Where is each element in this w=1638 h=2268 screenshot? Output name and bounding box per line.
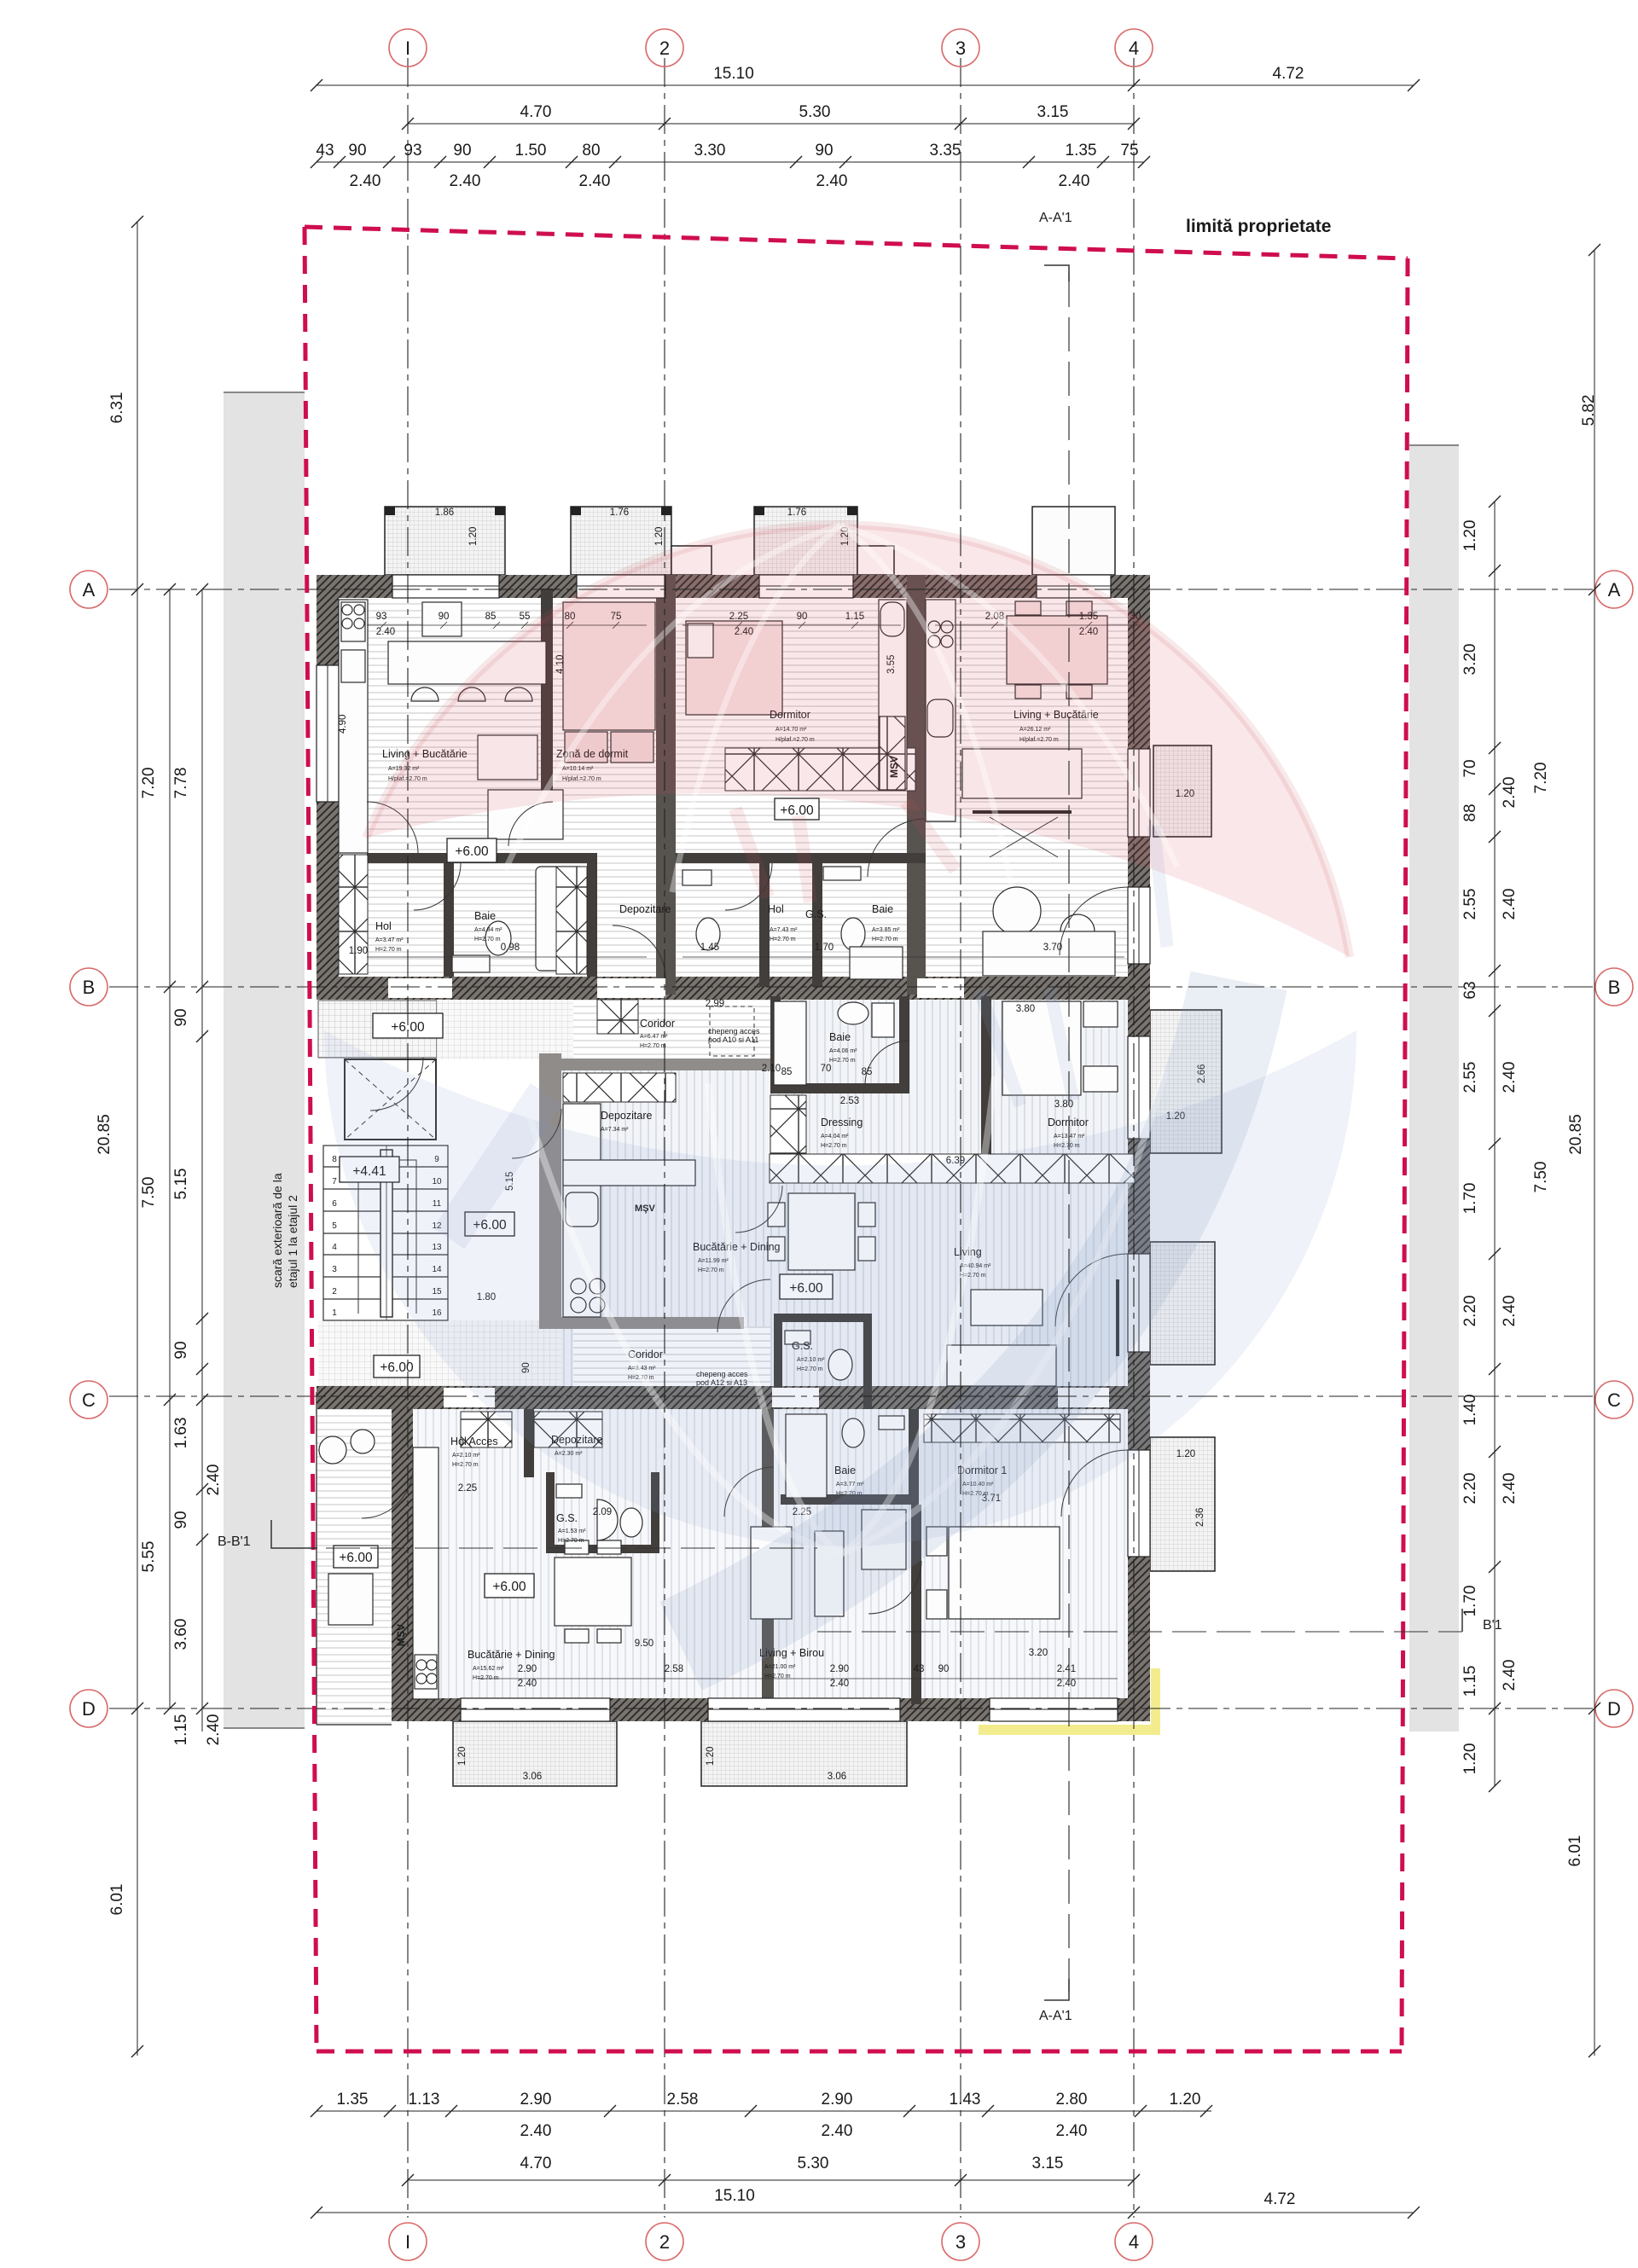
svg-text:B: B [1608,977,1621,998]
svg-text:A=21.00 m²: A=21.00 m² [764,1664,796,1670]
svg-text:2.20: 2.20 [1461,1473,1479,1505]
svg-text:93: 93 [404,142,421,160]
svg-text:2.40: 2.40 [450,172,481,190]
svg-text:3.60: 3.60 [172,1619,190,1650]
svg-text:2.90: 2.90 [518,1664,537,1674]
svg-text:85: 85 [781,1067,793,1077]
svg-text:2.40: 2.40 [205,1714,223,1746]
svg-text:MŞV: MŞV [395,1624,407,1646]
svg-text:2.80: 2.80 [1056,2091,1088,2108]
svg-text:93: 93 [376,612,387,622]
svg-text:B: B [83,977,96,998]
svg-text:80: 80 [582,142,600,160]
svg-text:3: 3 [955,2231,966,2253]
svg-text:1.20: 1.20 [1461,520,1479,552]
svg-text:A=1.53 m²: A=1.53 m² [558,1528,586,1534]
svg-text:A=4.06 m²: A=4.06 m² [829,1048,857,1054]
svg-text:6: 6 [332,1199,337,1209]
svg-text:2.10: 2.10 [762,1064,781,1074]
svg-text:6.01: 6.01 [1566,1836,1584,1867]
svg-text:55: 55 [520,612,531,622]
svg-text:2.40: 2.40 [1501,1296,1519,1327]
svg-text:20.85: 20.85 [96,1114,113,1155]
svg-text:5: 5 [332,1221,337,1231]
svg-text:pod A10 si A11: pod A10 si A11 [708,1035,758,1044]
svg-text:5.30: 5.30 [798,2155,829,2172]
svg-text:2.90: 2.90 [822,2091,853,2108]
svg-text:A-A'1: A-A'1 [1039,211,1072,225]
svg-text:A=3.47 m²: A=3.47 m² [375,937,404,943]
svg-text:1.35: 1.35 [337,2091,369,2108]
svg-text:A=7.34 m²: A=7.34 m² [601,1127,629,1133]
svg-text:limită proprietate: limită proprietate [1186,217,1331,236]
svg-text:90: 90 [815,142,833,160]
svg-text:I: I [405,2231,410,2253]
svg-text:3.15: 3.15 [1037,103,1069,121]
svg-text:15.10: 15.10 [714,2187,755,2205]
svg-text:+6.00: +6.00 [380,1360,414,1375]
svg-text:A=4.04 m²: A=4.04 m² [821,1134,849,1140]
svg-text:H=2.70 m: H=2.70 m [829,1058,856,1064]
svg-text:1.86: 1.86 [435,508,454,518]
svg-text:5.30: 5.30 [799,103,831,121]
svg-text:1.15: 1.15 [1461,1666,1479,1697]
svg-text:90: 90 [453,142,471,160]
svg-text:Hol: Hol [375,920,392,932]
svg-text:5.82: 5.82 [1580,395,1598,426]
svg-text:H=2.70 m: H=2.70 m [770,937,796,943]
svg-text:1.90: 1.90 [349,946,368,956]
svg-text:2.58: 2.58 [665,1664,683,1674]
svg-text:H=2.70 m: H=2.70 m [473,1675,499,1681]
svg-text:88: 88 [1461,803,1479,821]
svg-text:3.15: 3.15 [1032,2155,1064,2172]
svg-text:A: A [83,579,96,600]
svg-text:H=2.70 m: H=2.70 m [375,947,402,953]
svg-text:1: 1 [332,1308,337,1318]
svg-text:A=7.43 m²: A=7.43 m² [770,927,798,933]
svg-text:2.40: 2.40 [1501,1062,1519,1093]
svg-text:chepeng acces: chepeng acces [708,1027,760,1035]
svg-text:Hol Acces: Hol Acces [450,1436,498,1447]
svg-text:Coridor: Coridor [640,1018,675,1030]
svg-text:90: 90 [172,1008,190,1026]
svg-text:7: 7 [332,1177,337,1186]
svg-text:C: C [1607,1389,1621,1411]
svg-text:4.90: 4.90 [338,715,348,734]
svg-text:2.40: 2.40 [1501,777,1519,809]
svg-text:0.98: 0.98 [501,943,520,953]
svg-text:2.55: 2.55 [1461,889,1479,920]
svg-text:Dormitor: Dormitor [1048,1117,1089,1128]
svg-text:2.40: 2.40 [1501,1660,1519,1691]
svg-text:H=2.70 m: H=2.70 m [558,1538,584,1544]
svg-text:85: 85 [485,612,497,622]
svg-text:1.45: 1.45 [700,943,719,953]
svg-text:70: 70 [821,1064,832,1074]
svg-text:H=2.70 m: H=2.70 m [452,1462,479,1468]
svg-text:9.50: 9.50 [635,1639,653,1649]
svg-text:3.20: 3.20 [1029,1648,1048,1658]
svg-text:2.55: 2.55 [1461,1062,1479,1093]
svg-text:4: 4 [1129,2231,1139,2253]
svg-text:Depozitare: Depozitare [601,1110,652,1122]
svg-text:2: 2 [332,1287,337,1296]
svg-text:A-A'1: A-A'1 [1039,2009,1072,2023]
svg-text:+6.00: +6.00 [455,844,489,859]
svg-text:1.15: 1.15 [172,1714,190,1746]
svg-text:70: 70 [1461,759,1479,777]
svg-text:2: 2 [659,2231,670,2253]
svg-text:2.40: 2.40 [822,2122,853,2140]
svg-text:7.50: 7.50 [1532,1162,1550,1193]
svg-text:2.41: 2.41 [1057,1664,1076,1674]
svg-text:Baie: Baie [872,903,893,915]
svg-text:6.31: 6.31 [108,392,126,424]
svg-text:5.15: 5.15 [172,1169,190,1200]
svg-text:C: C [82,1389,96,1411]
svg-text:H=2.70 m: H=2.70 m [872,937,898,943]
svg-text:scară exterioară de la: scară exterioară de la [270,1173,284,1288]
svg-text:H=2.70 m: H=2.70 m [474,937,501,943]
svg-text:2.20: 2.20 [1461,1296,1479,1327]
svg-text:+6.00: +6.00 [492,1580,526,1594]
svg-text:1.43: 1.43 [950,2091,981,2108]
svg-text:2.40: 2.40 [205,1465,223,1496]
svg-text:3.06: 3.06 [828,1772,846,1782]
svg-text:1.70: 1.70 [1461,1586,1479,1617]
svg-text:I: I [405,38,410,59]
svg-text:2.90: 2.90 [830,1664,849,1674]
svg-text:2.58: 2.58 [667,2091,699,2108]
svg-text:+6.00: +6.00 [339,1551,373,1565]
svg-text:1.70: 1.70 [1461,1183,1479,1215]
svg-text:2.40: 2.40 [520,2122,552,2140]
svg-text:43: 43 [316,142,334,160]
svg-text:2.40: 2.40 [816,172,848,190]
svg-text:G.S.: G.S. [805,908,827,920]
svg-text:2.40: 2.40 [579,172,611,190]
svg-text:Baie: Baie [829,1031,851,1043]
svg-text:43: 43 [914,1664,925,1674]
svg-text:90: 90 [938,1664,950,1674]
svg-text:Bucătărie + Dining: Bucătărie + Dining [468,1649,555,1661]
svg-text:1.63: 1.63 [172,1418,190,1449]
svg-text:H=2.70 m: H=2.70 m [640,1043,666,1049]
svg-text:3.30: 3.30 [694,142,726,160]
svg-text:3: 3 [955,38,966,59]
svg-text:1.20: 1.20 [1170,2091,1201,2108]
svg-text:15.10: 15.10 [713,65,754,83]
svg-text:A=6.47 m²: A=6.47 m² [640,1034,668,1040]
svg-text:G.S.: G.S. [556,1512,578,1524]
svg-text:2.40: 2.40 [1059,172,1090,190]
svg-text:2.90: 2.90 [520,2091,552,2108]
svg-text:90: 90 [172,1511,190,1528]
svg-text:2.40: 2.40 [1501,1473,1519,1505]
svg-text:etajul 1 la etajul 2: etajul 1 la etajul 2 [286,1195,299,1288]
svg-text:3.70: 3.70 [1043,943,1062,953]
svg-text:2.53: 2.53 [840,1096,859,1106]
svg-text:A=15.62 m²: A=15.62 m² [473,1666,504,1672]
svg-text:4.70: 4.70 [520,103,552,121]
svg-text:1.20: 1.20 [706,1747,716,1766]
svg-text:3.20: 3.20 [1461,644,1479,676]
svg-text:3.06: 3.06 [523,1772,542,1782]
svg-text:2: 2 [659,38,670,59]
svg-text:2.36: 2.36 [1195,1508,1205,1527]
svg-text:2.25: 2.25 [458,1483,477,1494]
svg-text:4.70: 4.70 [520,2155,552,2172]
svg-text:2.40: 2.40 [1501,889,1519,920]
svg-text:2.09: 2.09 [593,1507,612,1517]
svg-text:A=3.85 m²: A=3.85 m² [872,927,900,933]
svg-text:1.20: 1.20 [1461,1743,1479,1775]
svg-text:2.99: 2.99 [706,999,724,1009]
svg-text:1.76: 1.76 [787,508,806,518]
svg-text:7.20: 7.20 [1532,763,1550,794]
svg-text:3.80: 3.80 [1054,1099,1073,1110]
svg-text:7.50: 7.50 [140,1177,158,1209]
svg-text:75: 75 [1120,142,1138,160]
svg-text:1.70: 1.70 [815,943,834,953]
svg-text:Hol: Hol [768,903,784,915]
svg-text:4: 4 [332,1243,337,1252]
svg-text:85: 85 [862,1067,873,1077]
svg-text:1.35: 1.35 [1066,142,1097,160]
svg-text:1.20: 1.20 [654,527,665,546]
svg-text:2.40: 2.40 [376,627,395,637]
svg-text:7.20: 7.20 [140,768,158,799]
svg-text:2.40: 2.40 [830,1679,849,1689]
svg-text:3.35: 3.35 [930,142,961,160]
svg-text:D: D [82,1698,96,1720]
svg-text:8: 8 [332,1155,337,1164]
svg-text:4: 4 [1129,38,1139,59]
svg-text:H=2.70 m: H=2.70 m [821,1143,847,1149]
svg-text:2.40: 2.40 [350,172,381,190]
svg-text:3: 3 [332,1265,337,1274]
svg-text:2.40: 2.40 [1056,2122,1088,2140]
svg-text:Depozitare: Depozitare [619,903,671,915]
svg-text:D: D [1607,1698,1621,1720]
svg-text:4.72: 4.72 [1264,2190,1296,2208]
svg-text:63: 63 [1461,981,1479,999]
svg-text:A=2.10 m²: A=2.10 m² [452,1453,480,1459]
svg-text:1.20: 1.20 [457,1747,468,1766]
svg-text:90: 90 [439,612,450,622]
svg-text:1.40: 1.40 [1461,1395,1479,1426]
svg-text:2.40: 2.40 [518,1679,537,1689]
svg-text:B'1: B'1 [1483,1618,1502,1633]
svg-text:A=4.84 m²: A=4.84 m² [474,927,502,933]
svg-text:1.50: 1.50 [515,142,547,160]
svg-text:1.13: 1.13 [409,2091,440,2108]
svg-text:A: A [1608,579,1621,600]
svg-text:B-B'1: B-B'1 [218,1534,251,1549]
svg-text:1.20: 1.20 [468,527,479,546]
svg-text:Baie: Baie [474,910,496,922]
svg-text:20.85: 20.85 [1567,1114,1585,1155]
svg-text:7.78: 7.78 [172,768,190,799]
svg-text:90: 90 [172,1341,190,1359]
svg-text:2.40: 2.40 [1057,1679,1076,1689]
svg-text:6.01: 6.01 [108,1884,126,1916]
svg-text:90: 90 [348,142,366,160]
svg-text:4.72: 4.72 [1273,65,1304,83]
svg-text:Dressing: Dressing [821,1117,863,1128]
svg-text:5.55: 5.55 [140,1541,158,1573]
svg-text:3.80: 3.80 [1016,1004,1035,1014]
svg-text:1.20: 1.20 [1176,1449,1195,1459]
svg-text:1.76: 1.76 [610,508,629,518]
